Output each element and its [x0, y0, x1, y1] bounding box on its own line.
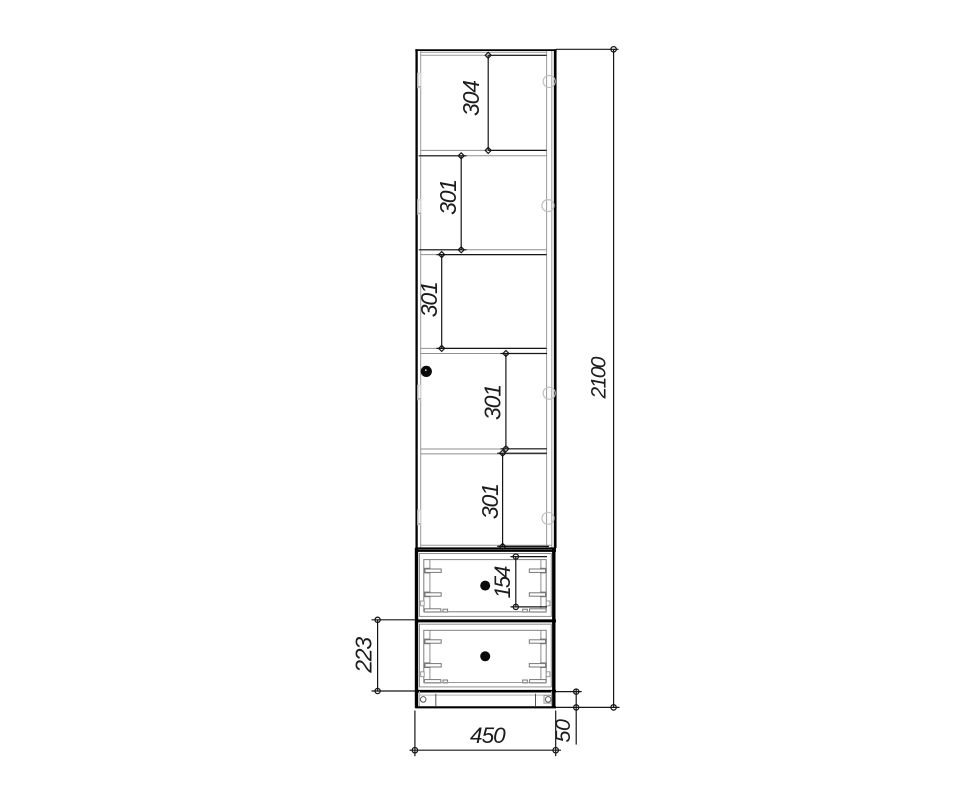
svg-text:301: 301 [477, 484, 503, 519]
svg-text:450: 450 [470, 723, 506, 748]
svg-text:50: 50 [551, 719, 575, 742]
svg-text:2100: 2100 [587, 356, 610, 399]
svg-text:304: 304 [458, 81, 484, 116]
svg-text:154: 154 [490, 566, 515, 598]
svg-text:223: 223 [351, 637, 377, 674]
svg-text:301: 301 [435, 180, 461, 215]
svg-text:301: 301 [416, 282, 442, 317]
svg-text:301: 301 [479, 385, 505, 420]
